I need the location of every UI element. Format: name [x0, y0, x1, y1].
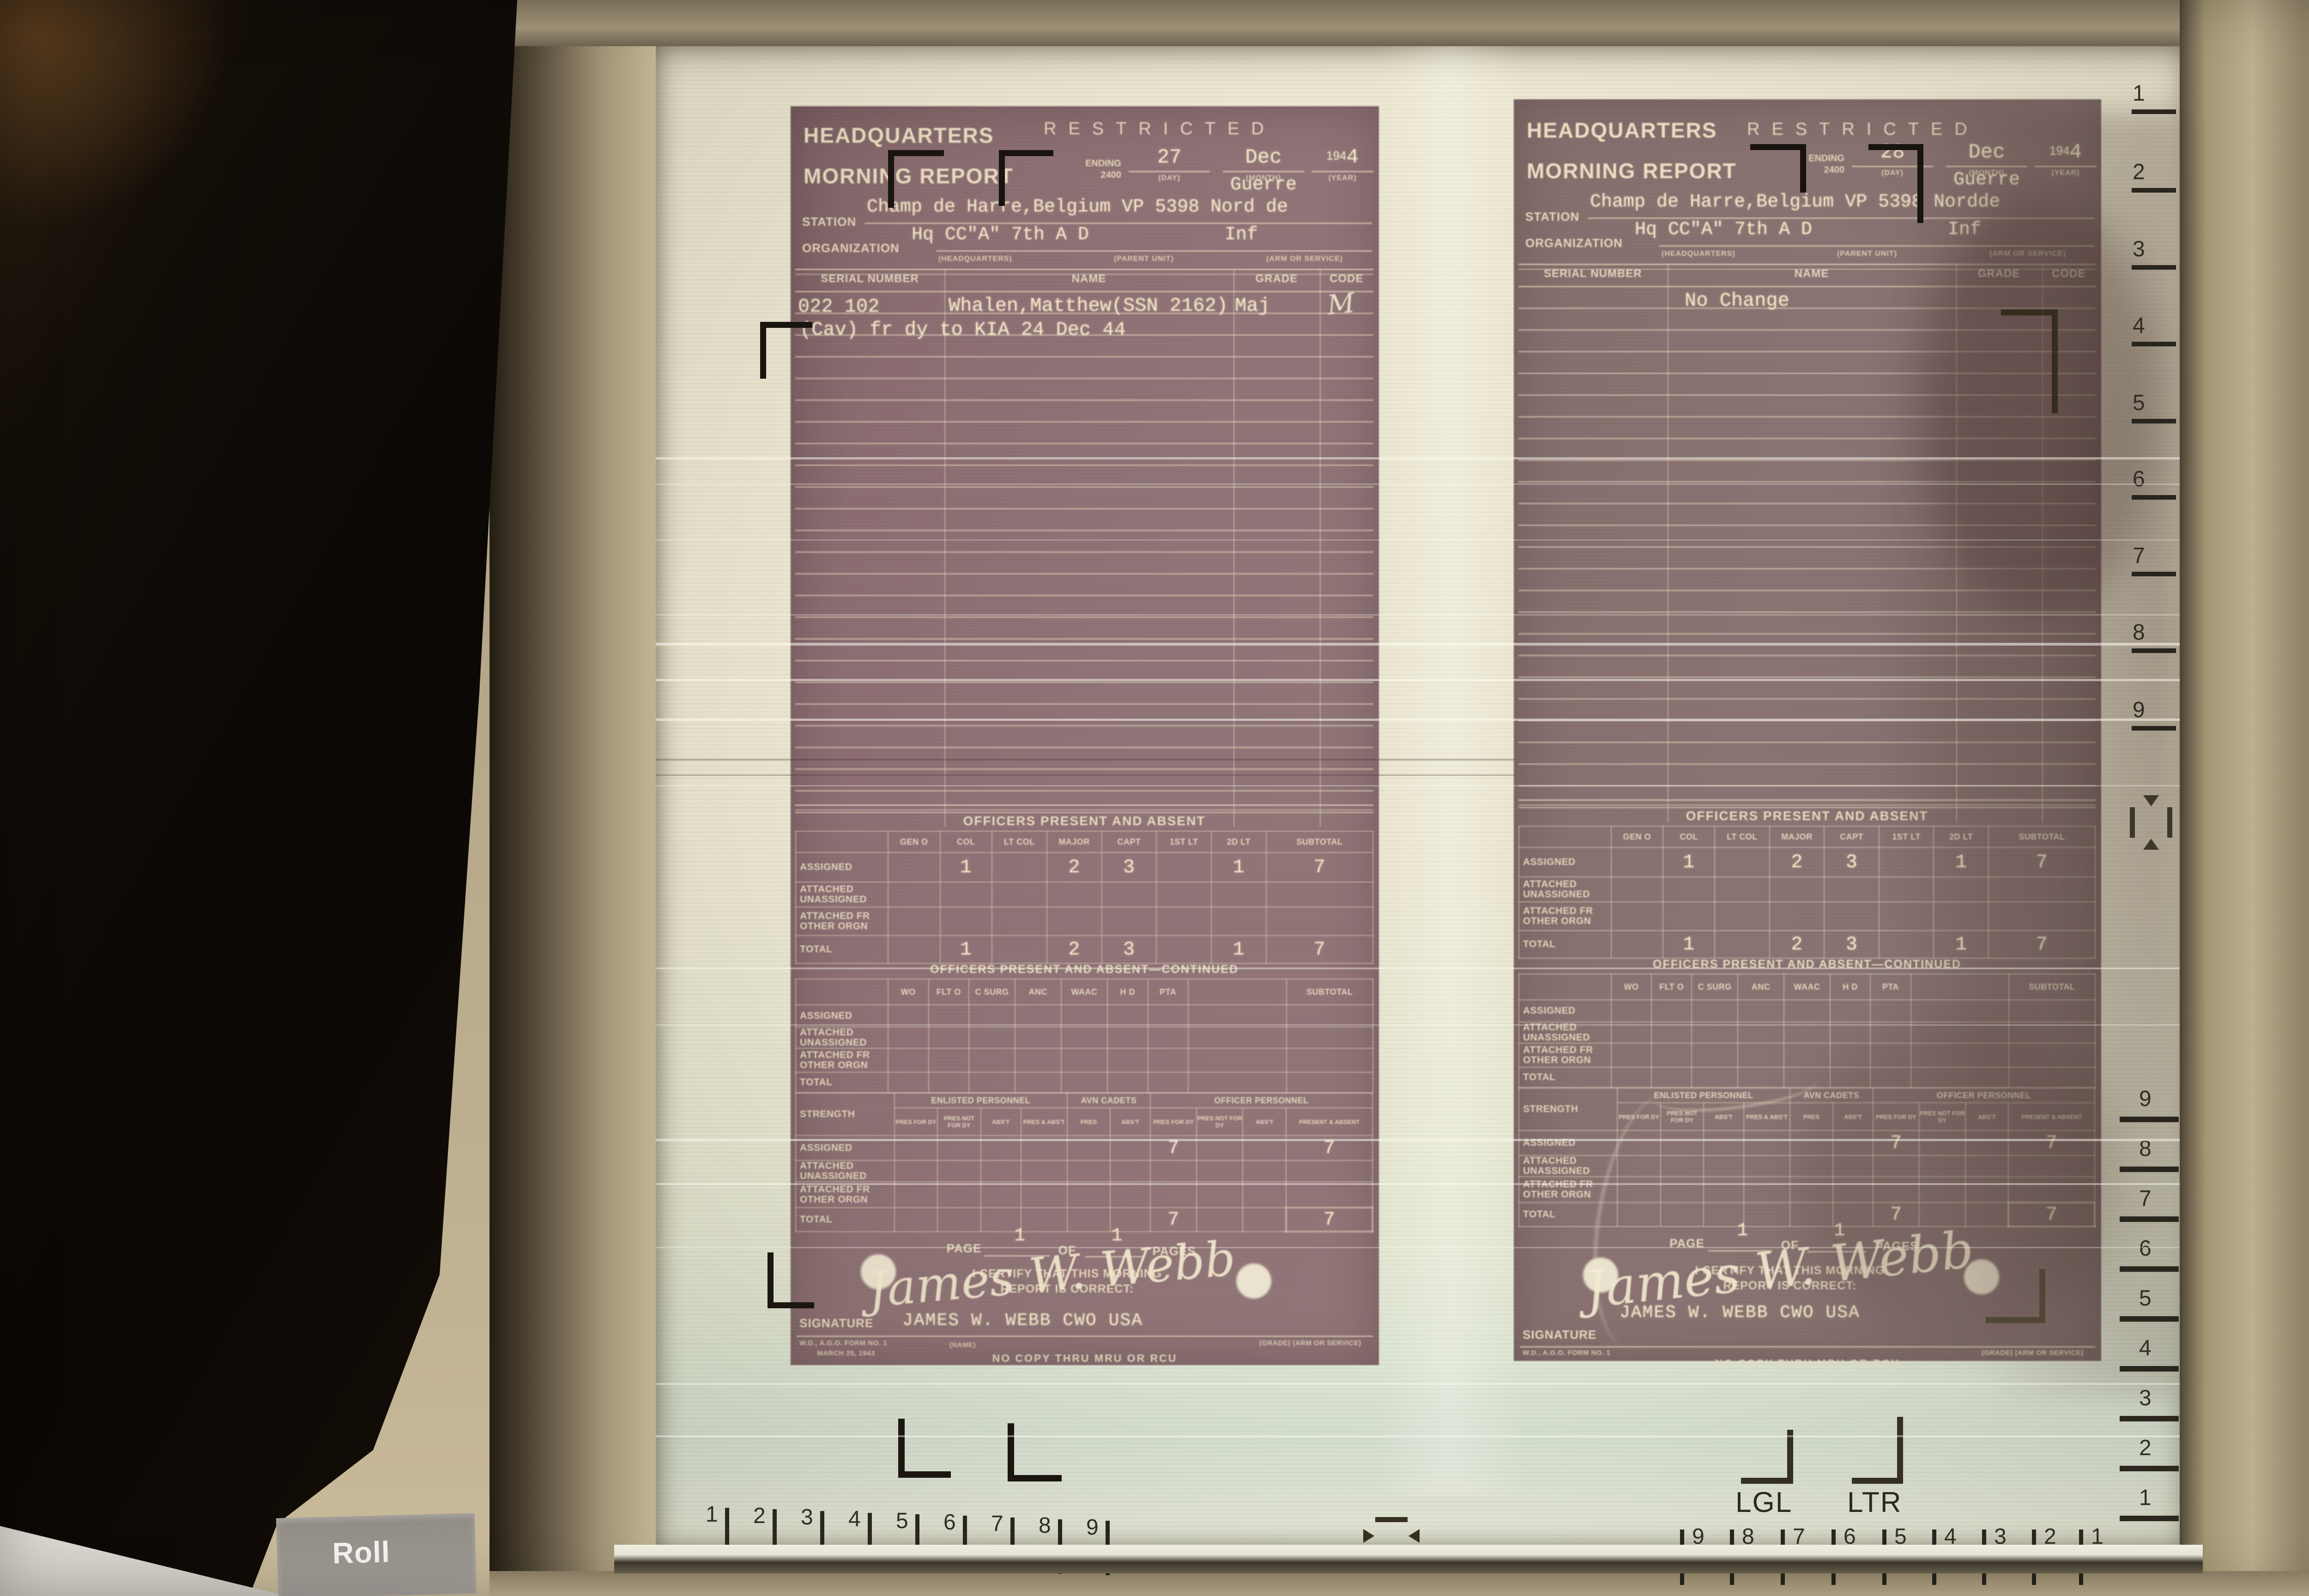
officers-continued-table: WOFLT O C SURGANC WAACH D PTA SUBTOTAL A…	[795, 979, 1373, 1093]
ruler-number: 2	[753, 1503, 766, 1529]
crop-mark	[768, 1252, 814, 1308]
col-grade: GRADE	[1233, 272, 1320, 285]
reader-frame-top	[485, 0, 2309, 46]
entry-name: Whalen,Matthew(SSN 2162)	[949, 295, 1228, 317]
hq-sub-label: (HEADQUARTERS)	[1662, 250, 1735, 258]
ruler-number: 5	[2139, 1286, 2152, 1311]
strength-table: STRENGTH ENLISTED PERSONNEL AVN CADETS O…	[795, 1093, 1373, 1233]
punch-hole-left	[861, 1254, 896, 1289]
footer-note: NO COPY THRU MRU OR RCU	[1514, 1357, 2101, 1370]
organization-label: ORGANIZATION	[1525, 236, 1623, 250]
col-serial: SERIAL NUMBER	[1518, 267, 1668, 280]
arm-service-sub-label: (ARM OR SERVICE)	[1266, 255, 1343, 263]
ruler-number: 1	[2133, 81, 2145, 106]
officers-continued-table: WOFLT O C SURGANC WAACH D PTA SUBTOTAL A…	[1518, 973, 2096, 1088]
col-grade: GRADE	[1956, 267, 2042, 280]
ruler-number: 3	[2139, 1385, 2152, 1411]
of-label: OF	[1058, 1243, 1076, 1257]
form-id: W.D., A.G.O. FORM NO. 1	[1523, 1349, 1610, 1357]
doc-title: HEADQUARTERS	[1527, 118, 1717, 143]
ruler-number: 9	[2139, 1086, 2152, 1112]
pages-number: 1	[1111, 1226, 1122, 1246]
month-field: Dec(MONTH)	[1946, 139, 2027, 177]
station-value: Champ de Harre,Belgium VP 5398 Nordde	[1590, 192, 2000, 212]
ruler-number: 3	[2133, 236, 2145, 262]
footer-note: NO COPY THRU MRU OR RCU	[791, 1352, 1379, 1365]
reader-frame-left	[490, 0, 656, 1596]
station-rule	[864, 223, 1372, 224]
col-code: CODE	[1320, 272, 1373, 285]
microfilm-reader-photo: HEADQUARTERS RESTRICTED MORNING REPORT E…	[0, 0, 2309, 1596]
signature-label: SIGNATURE	[799, 1316, 873, 1330]
punch-hole-left	[1583, 1257, 1618, 1293]
page-number: 1	[1014, 1226, 1025, 1246]
signature-label: SIGNATURE	[1523, 1328, 1596, 1342]
crop-mark	[760, 322, 812, 379]
year-field: 1944 (YEAR)	[1312, 144, 1373, 182]
ending-label: ENDING2400	[1073, 158, 1121, 181]
hq-sub-label: (HEADQUARTERS)	[938, 255, 1012, 263]
roster-top-rule	[795, 269, 1373, 275]
crop-mark	[999, 150, 1053, 206]
pages-label: PAGES	[1153, 1244, 1196, 1258]
organization-value: Hq CC"A" 7th A D	[1635, 219, 1812, 240]
parent-unit-sub-label: (PARENT UNIT)	[1837, 250, 1897, 258]
ruler-number: 4	[2133, 313, 2145, 339]
crop-mark	[2001, 309, 2058, 413]
roster-headers: SERIAL NUMBER NAME GRADE CODE	[1518, 267, 2096, 280]
ruler-number: 4	[848, 1506, 861, 1532]
signature-script: James W. Webb	[1582, 1220, 1976, 1319]
year-written-entry: Guerre	[1230, 175, 1297, 195]
entry-grade: Maj	[1235, 295, 1270, 317]
screen-bottom-slit	[614, 1545, 2203, 1573]
handwriting-scribble	[1650, 1059, 1820, 1118]
officers-title: OFFICERS PRESENT AND ABSENT	[1518, 805, 2096, 826]
organization-label: ORGANIZATION	[802, 241, 900, 255]
officers-table: GEN OCOL LT COLMAJOR CAPT1ST LT 2D LTSUB…	[1518, 826, 2096, 959]
ruler-number: 6	[2133, 466, 2145, 492]
ruler-number: 5	[896, 1508, 908, 1534]
col-code: CODE	[2042, 267, 2096, 280]
strength-section: STRENGTH ENLISTED PERSONNEL AVN CADETS O…	[1518, 1088, 2096, 1227]
arm-service-value: Inf	[1225, 224, 1258, 245]
page-label: PAGE	[947, 1241, 982, 1256]
crop-mark	[898, 1419, 951, 1478]
entry-name: No Change	[1685, 290, 1789, 312]
arm-service-sub-label: (ARM OR SERVICE)	[1989, 250, 2066, 258]
projection-screen: HEADQUARTERS RESTRICTED MORNING REPORT E…	[656, 46, 2180, 1545]
roster-table: SERIAL NUMBER NAME GRADE CODE 022 102 Wh…	[795, 269, 1373, 827]
ruler-number: 8	[1039, 1513, 1051, 1538]
station-label: STATION	[1525, 210, 1579, 224]
col-serial: SERIAL NUMBER	[795, 272, 944, 285]
reader-frame-right	[2180, 0, 2309, 1596]
morning-report-left: HEADQUARTERS RESTRICTED MORNING REPORT E…	[791, 106, 1379, 1365]
punch-hole-right	[1236, 1263, 1271, 1299]
station-label: STATION	[802, 215, 856, 229]
officers-section: OFFICERS PRESENT AND ABSENT GEN OCOL LT …	[795, 804, 1373, 964]
entry-code-handwritten: M	[1326, 287, 1356, 321]
restricted-stamp: RESTRICTED	[1747, 120, 1979, 139]
entry-note: (Cav) fr dy to KIA 24 Dec 44	[800, 319, 1126, 341]
doc-title-2: MORNING REPORT	[1527, 158, 1737, 183]
page-number: 1	[1737, 1221, 1748, 1241]
ruler-number: 9	[1086, 1515, 1099, 1540]
org-rule	[936, 250, 1372, 252]
handwriting-scribble	[1578, 1086, 1722, 1358]
strength-table: STRENGTH ENLISTED PERSONNEL AVN CADETS O…	[1518, 1088, 2096, 1227]
restricted-stamp: RESTRICTED	[1044, 119, 1276, 139]
ruler-number: 3	[801, 1505, 813, 1530]
ruler-number: 6	[943, 1510, 956, 1535]
of-label: OF	[1781, 1238, 1799, 1252]
morning-report-right: HEADQUARTERS RESTRICTED MORNING REPORT E…	[1514, 99, 2101, 1361]
officers-section: OFFICERS PRESENT AND ABSENT GEN OCOL LT …	[1518, 799, 2096, 959]
reader-frame-bottom	[490, 1571, 2309, 1596]
crop-mark	[1750, 144, 1806, 193]
pages-label: PAGES	[1875, 1239, 1918, 1253]
day-field: 27(DAY)	[1129, 144, 1210, 182]
roster-headers: SERIAL NUMBER NAME GRADE CODE	[795, 272, 1373, 285]
ruler-number: 8	[2133, 620, 2145, 645]
ruler-number: 7	[2139, 1186, 2152, 1211]
signature-script: James W. Webb	[865, 1230, 1238, 1318]
roster-rows	[795, 292, 1373, 827]
screen-glow	[1376, 46, 1524, 1496]
legal-size-label: LGL	[1735, 1486, 1792, 1519]
ruler-number: 1	[706, 1502, 718, 1527]
organization-value: Hq CC"A" 7th A D	[912, 224, 1089, 245]
name-sub-label: (NAME)	[949, 1341, 976, 1349]
officers-continued-section: OFFICERS PRESENT AND ABSENT—CONTINUED WO…	[795, 960, 1373, 1093]
ruler-number: 1	[2139, 1485, 2152, 1511]
ruler-number: 2	[2139, 1435, 2152, 1461]
arm-service-value: Inf	[1948, 219, 1981, 240]
parent-unit-sub-label: (PARENT UNIT)	[1114, 255, 1174, 263]
crop-mark	[1868, 144, 1923, 223]
ruler-number: 7	[991, 1511, 1003, 1536]
ruler-number: 7	[2133, 543, 2145, 568]
col-name: NAME	[944, 272, 1233, 285]
signature-typed: JAMES W. WEBB CWO USA	[902, 1311, 1143, 1330]
col-name: NAME	[1668, 267, 1956, 280]
ruler-number: 5	[2133, 390, 2145, 416]
year-written-entry: Guerre	[1953, 169, 2020, 190]
ruler-number: 4	[2139, 1336, 2152, 1361]
grade-sub-label: (GRADE) (ARM OR SERVICE)	[1259, 1339, 1361, 1347]
page-label: PAGE	[1669, 1236, 1705, 1251]
officers-continued-title: OFFICERS PRESENT AND ABSENT—CONTINUED	[1518, 955, 2096, 973]
letter-size-label: LTR	[1847, 1486, 1902, 1519]
roll-button-label: Roll	[332, 1535, 391, 1570]
month-field: Dec(MONTH)	[1223, 144, 1304, 182]
ruler-number: 2	[2133, 159, 2145, 185]
doc-title: HEADQUARTERS	[804, 123, 994, 148]
year-field: 1944 (YEAR)	[2035, 139, 2097, 177]
vertical-center-icon	[2130, 795, 2172, 850]
officers-continued-section: OFFICERS PRESENT AND ABSENT—CONTINUED WO…	[1518, 955, 2096, 1088]
ruler-number: 6	[2139, 1236, 2152, 1261]
crop-mark	[1852, 1417, 1903, 1484]
officers-title: OFFICERS PRESENT AND ABSENT	[795, 810, 1373, 831]
form-id: W.D., A.G.O. FORM NO. 1	[799, 1339, 887, 1347]
crop-mark	[1008, 1423, 1062, 1481]
signature-typed: JAMES W. WEBB CWO USA	[1620, 1303, 1860, 1323]
crop-mark	[888, 150, 944, 208]
form-date: MARCH 25, 1943	[817, 1349, 875, 1357]
certify-text: I CERTIFY THAT THIS MORNING REPORT IS CO…	[1655, 1263, 1925, 1294]
entry-serial: 022 102	[798, 296, 879, 318]
strength-section: STRENGTH ENLISTED PERSONNEL AVN CADETS O…	[795, 1093, 1373, 1233]
roll-button[interactable]: Roll	[276, 1513, 477, 1596]
grade-sub-label: (GRADE) (ARM OR SERVICE)	[1982, 1349, 2084, 1357]
crop-mark	[1986, 1269, 2045, 1323]
certify-text: I CERTIFY THAT THIS MORNING REPORT IS CO…	[932, 1266, 1203, 1297]
crop-mark	[1741, 1430, 1793, 1484]
officers-table: GEN OCOL LT COLMAJOR CAPT1ST LT 2D LTSUB…	[795, 831, 1373, 964]
pages-number: 1	[1834, 1221, 1845, 1241]
